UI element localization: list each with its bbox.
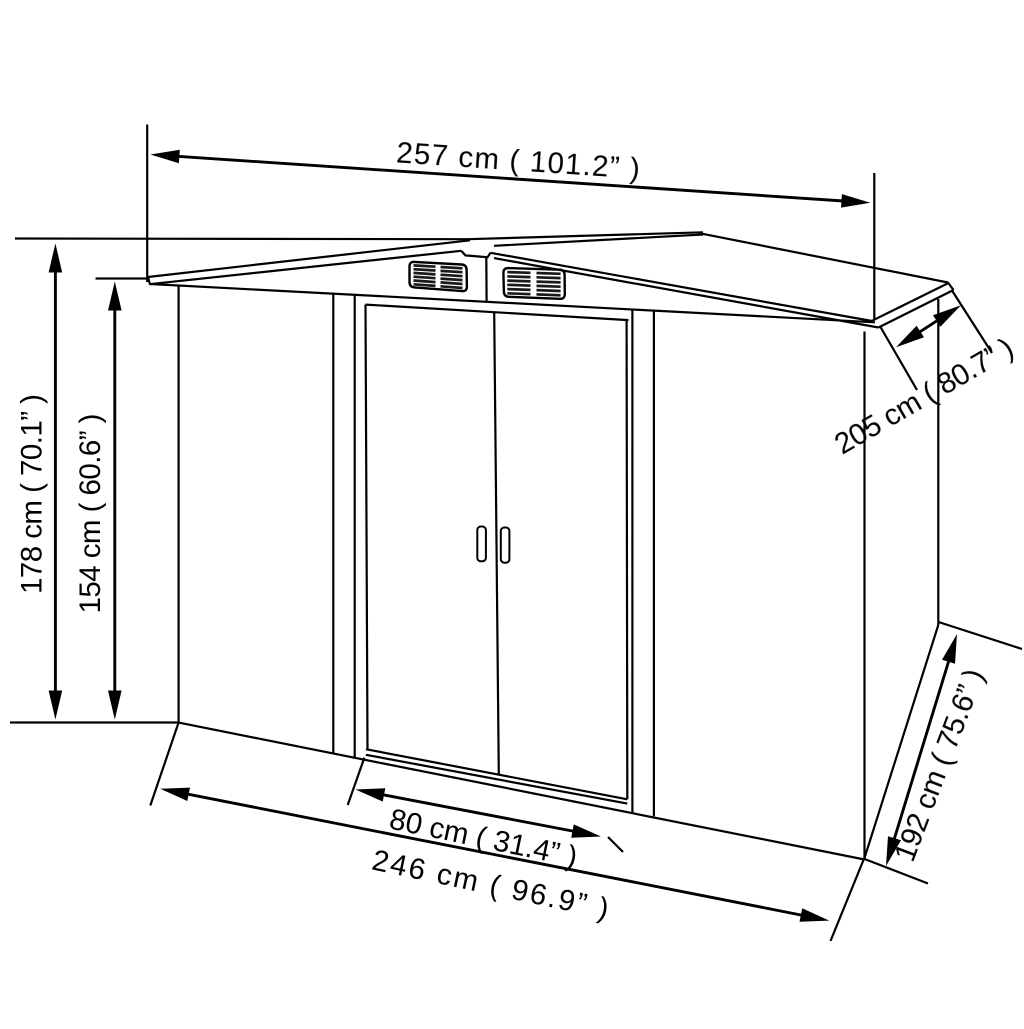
svg-text:154 cm ( 60.6” ): 154 cm ( 60.6” )	[74, 414, 107, 614]
svg-text:178 cm ( 70.1” ): 178 cm ( 70.1” )	[16, 394, 49, 594]
